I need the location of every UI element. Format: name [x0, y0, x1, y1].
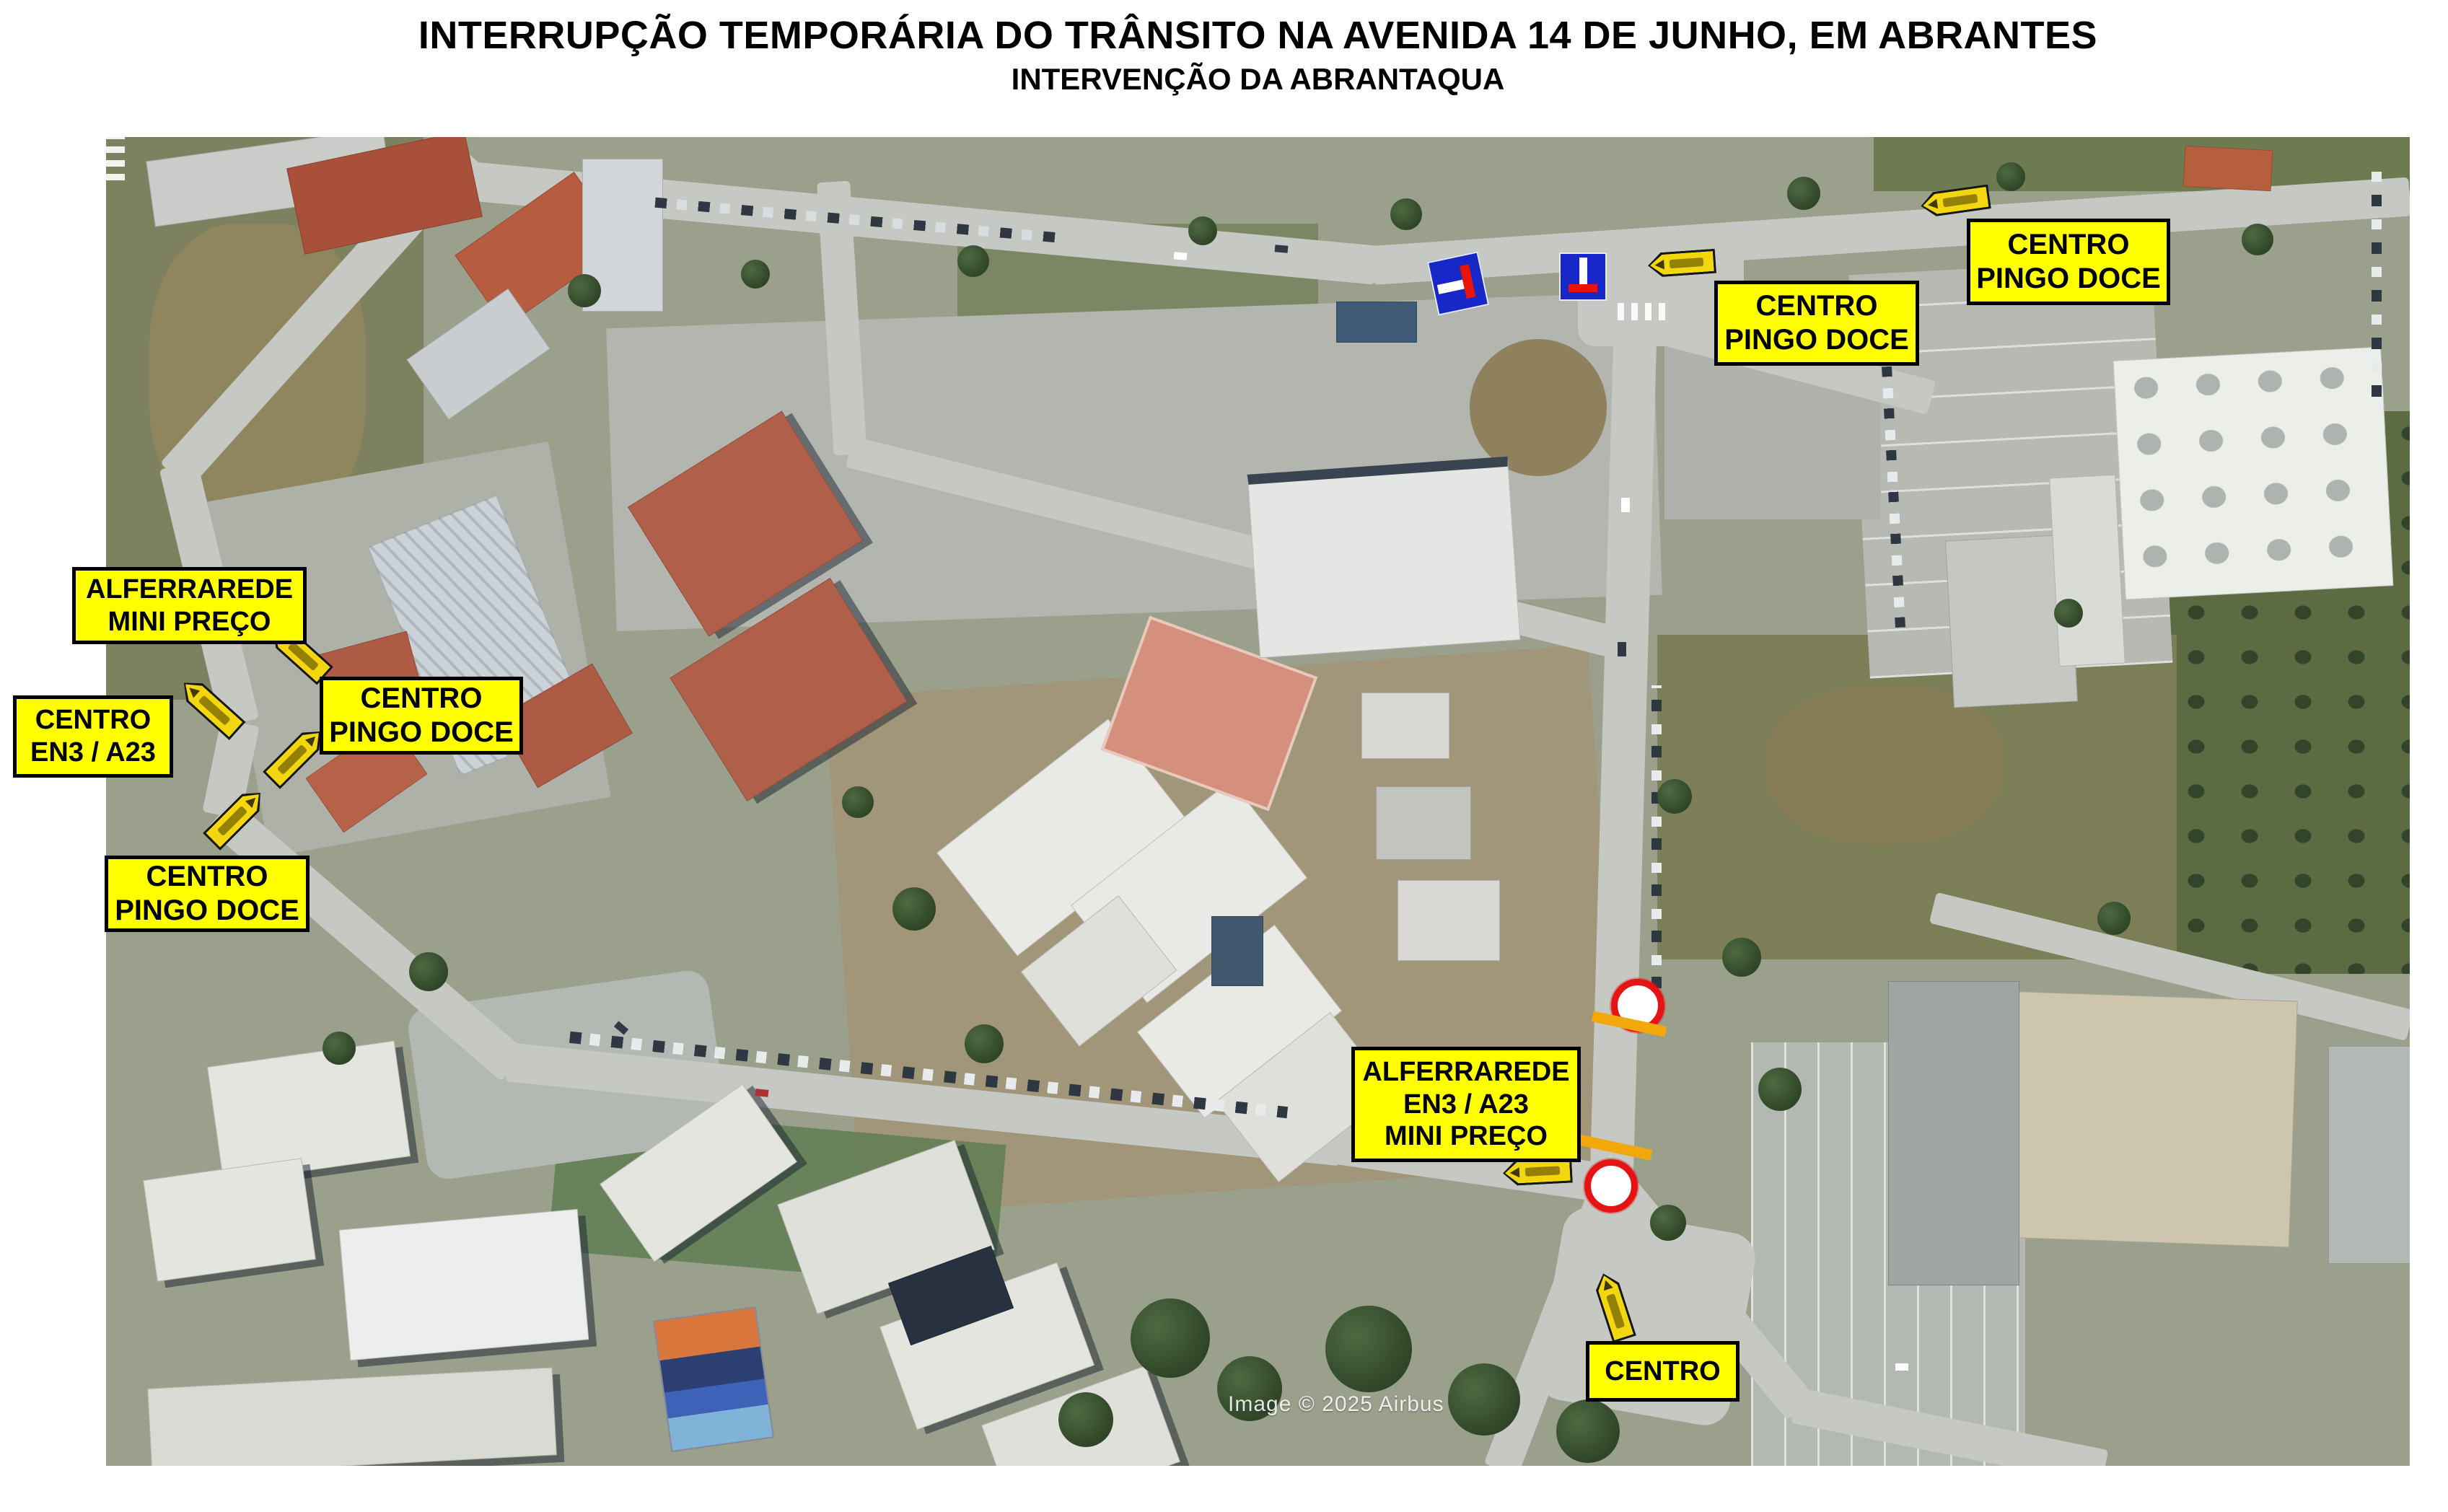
building: [2183, 146, 2273, 191]
warehouse: [1247, 457, 1521, 659]
map-label-centro-pingo-doce-left: CENTRO PINGO DOCE: [105, 856, 310, 932]
map-label-alferrarede-en3-a23-mini-preco: ALFERRAREDE EN3 / A23 MINI PREÇO: [1351, 1047, 1581, 1162]
tree: [1188, 216, 1217, 245]
tree: [965, 1024, 1004, 1063]
map-label-centro-en3-a23: CENTRO EN3 / A23: [13, 695, 173, 778]
tree: [1390, 198, 1422, 230]
label-line: ALFERRAREDE: [1362, 1056, 1569, 1089]
tree: [842, 786, 874, 818]
label-line: CENTRO: [1756, 289, 1878, 323]
label-line: PINGO DOCE: [1724, 323, 1909, 357]
direction-arrow-sign: [1647, 249, 1716, 278]
building: [2049, 475, 2125, 667]
no-through-road-sign: [1427, 251, 1489, 315]
tree: [1131, 1298, 1210, 1378]
tree: [1448, 1363, 1520, 1436]
page-subtitle: INTERVENÇÃO DA ABRANTAQUA: [106, 62, 2410, 97]
label-line: EN3 / A23: [1403, 1089, 1529, 1121]
road-closed-icon: [1584, 1159, 1638, 1213]
label-line: PINGO DOCE: [115, 894, 299, 928]
label-line: CENTRO: [1605, 1355, 1720, 1388]
tree: [1996, 162, 2025, 191]
supermarket-building: [2113, 346, 2394, 599]
tree: [1325, 1306, 1412, 1392]
label-line: PINGO DOCE: [1976, 262, 2161, 296]
tree: [1058, 1392, 1113, 1447]
car: [755, 1089, 769, 1097]
page-title: INTERRUPÇÃO TEMPORÁRIA DO TRÂNSITO NA AV…: [106, 13, 2410, 58]
apartment-building: [143, 1158, 316, 1282]
apartment-building: [207, 1041, 411, 1183]
map-label-centro-bottom: CENTRO: [1586, 1341, 1740, 1402]
field: [1765, 685, 2004, 844]
tree: [741, 260, 770, 289]
map-label-centro-pingo-doce-top-right: CENTRO PINGO DOCE: [1967, 219, 2170, 305]
road-segment: [207, 799, 526, 1081]
label-line: ALFERRAREDE: [86, 573, 293, 606]
tree: [1722, 938, 1761, 977]
map-label-centro-pingo-doce-top: CENTRO PINGO DOCE: [1714, 281, 1919, 366]
tree: [892, 887, 936, 931]
label-line: CENTRO: [361, 682, 483, 716]
label-line: MINI PREÇO: [108, 606, 271, 638]
map-label-centro-pingo-doce-center: CENTRO PINGO DOCE: [320, 677, 523, 755]
building: [1398, 880, 1500, 961]
satellite-map: Image © 2025 Airbus: [106, 137, 2410, 1466]
building: [1361, 693, 1449, 759]
label-line: EN3 / A23: [30, 737, 156, 769]
car: [1621, 498, 1630, 512]
map-attribution: Image © 2025 Airbus: [1228, 1392, 1444, 1417]
tree: [957, 245, 989, 277]
tree: [2242, 224, 2273, 255]
label-line: MINI PREÇO: [1385, 1120, 1548, 1153]
tree: [2054, 599, 2083, 628]
dirt-circle: [1470, 339, 1607, 476]
warehouse: [1888, 981, 2019, 1285]
tree: [323, 1032, 356, 1065]
building: [1211, 916, 1263, 986]
building: [1336, 302, 1417, 343]
no-through-road-sign: [1559, 252, 1607, 301]
label-line: PINGO DOCE: [329, 716, 514, 750]
header: INTERRUPÇÃO TEMPORÁRIA DO TRÂNSITO NA AV…: [106, 13, 2410, 97]
car: [1618, 642, 1626, 656]
crosswalk: [106, 137, 125, 180]
warehouse: [1978, 990, 2298, 1248]
car: [1174, 252, 1188, 260]
tree: [1657, 779, 1692, 814]
label-line: CENTRO: [35, 704, 151, 737]
label-line: CENTRO: [146, 860, 268, 894]
label-line: CENTRO: [2008, 228, 2130, 262]
crosswalk: [1618, 303, 1668, 320]
apartment-building: [339, 1209, 589, 1361]
tree: [1650, 1205, 1686, 1241]
tree: [568, 274, 601, 307]
car: [1895, 1363, 1908, 1371]
map-label-alferrarede-mini-preco: ALFERRAREDE MINI PREÇO: [72, 567, 307, 644]
tree: [1556, 1399, 1620, 1463]
sign-white-bar: [1579, 258, 1587, 285]
car: [1275, 245, 1289, 253]
building: [1376, 786, 1471, 860]
tree: [1787, 177, 1820, 210]
parked-cars-row: [2372, 159, 2382, 397]
sign-red-bar: [1569, 284, 1597, 292]
building: [2328, 1046, 2410, 1264]
tree: [409, 952, 448, 991]
tree: [1758, 1068, 1802, 1111]
tree: [2097, 902, 2131, 935]
playground: [653, 1306, 774, 1452]
apartment-building: [147, 1367, 557, 1466]
parked-cars-row: [1651, 685, 1662, 988]
flyer-page: INTERRUPÇÃO TEMPORÁRIA DO TRÂNSITO NA AV…: [0, 0, 2448, 1512]
